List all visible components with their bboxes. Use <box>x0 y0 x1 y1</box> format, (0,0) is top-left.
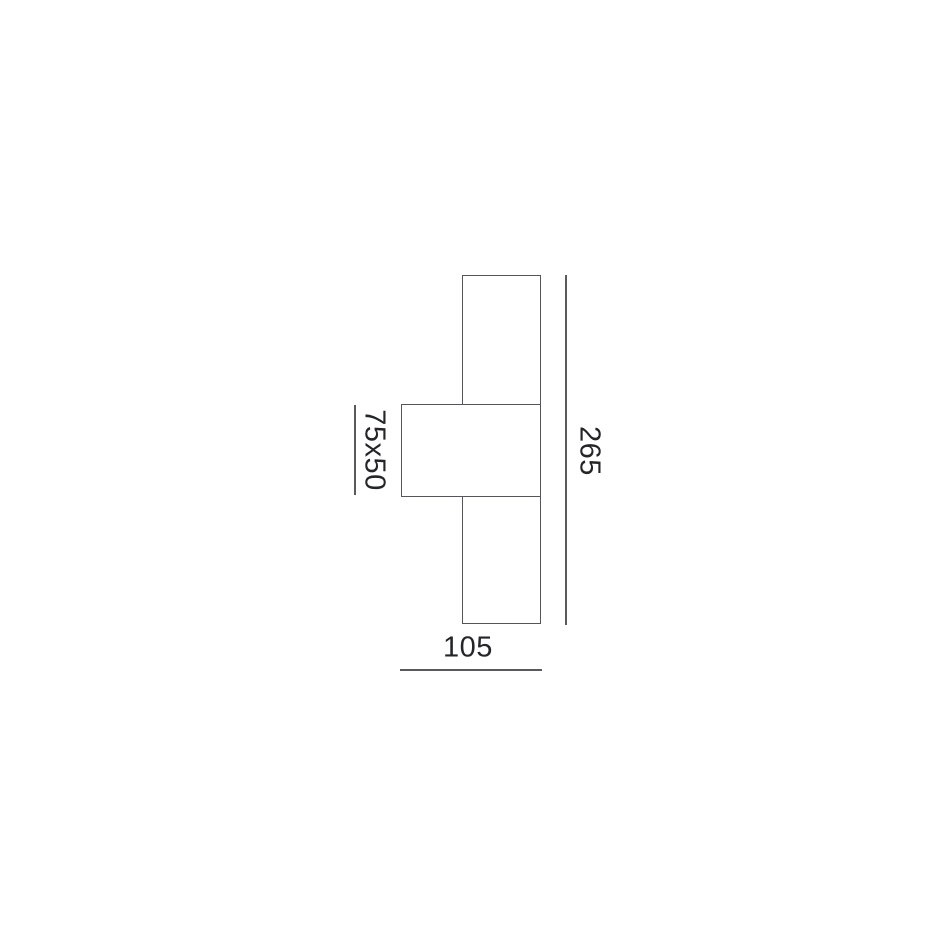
mount-bracket-rect <box>401 404 541 497</box>
width-dimension-line <box>400 669 542 671</box>
dimension-drawing-canvas: 265 75x50 105 <box>0 0 950 950</box>
profile-dimension-line <box>354 405 356 495</box>
height-dimension-label: 265 <box>573 426 606 476</box>
height-dimension-line <box>565 275 567 625</box>
width-dimension-label: 105 <box>443 632 493 665</box>
profile-dimension-label: 75x50 <box>358 409 391 491</box>
